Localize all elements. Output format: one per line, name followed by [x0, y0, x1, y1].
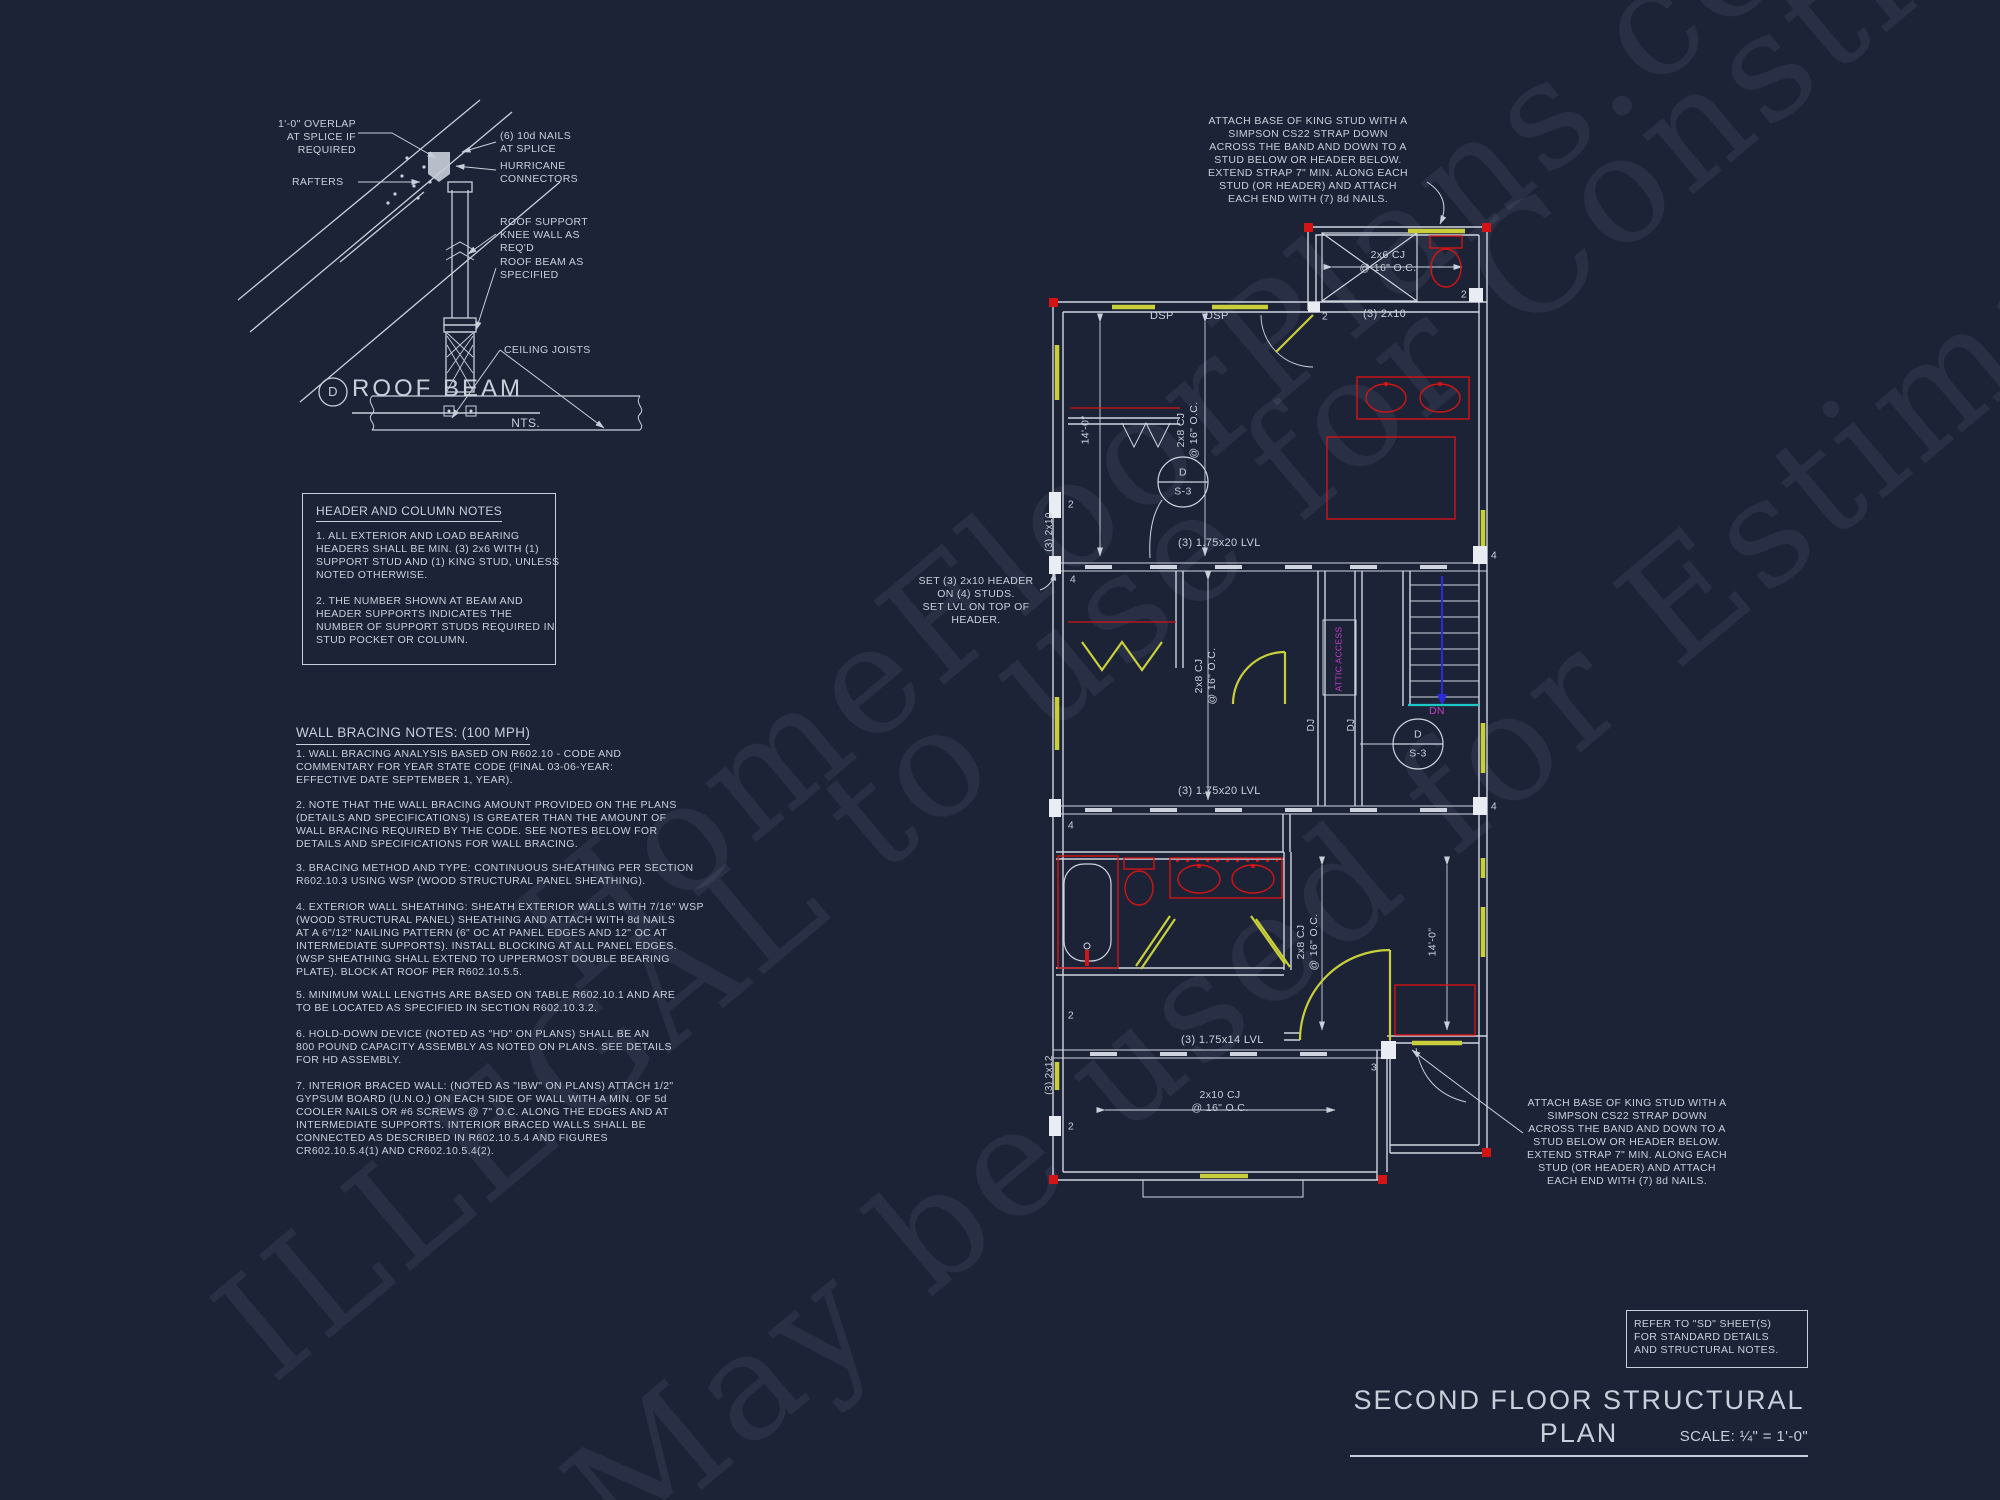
overlap-note: 1'-0" OVERLAP AT SPLICE IF REQUIRED: [228, 118, 356, 157]
ceiling-joists-label: CEILING JOISTS: [504, 344, 591, 357]
header-note-2: 2. THE NUMBER SHOWN AT BEAM AND HEADER S…: [316, 595, 555, 647]
lvl-14-label: (3) 1.75x14 LVL: [1181, 1034, 1264, 1048]
cj-2x10-label: 2x10 CJ @ 16" O.C.: [1172, 1089, 1268, 1115]
detail-bubble-letter: D: [328, 384, 338, 400]
detail-title: ROOF BEAM: [352, 374, 523, 404]
stud-marker: 2: [1461, 288, 1467, 301]
roof-beam-label: ROOF BEAM AS SPECIFIED: [500, 256, 584, 282]
dj-label-2: DJ: [1346, 719, 1358, 732]
stud-marker: 4: [1070, 573, 1076, 586]
header-note-1: 1. ALL EXTERIOR AND LOAD BEARING HEADERS…: [316, 530, 559, 582]
lvl-20-label-1: (3) 1.75x20 LVL: [1178, 537, 1261, 551]
stud-pocket-markers: [1049, 288, 1487, 1136]
stair-direction: [1408, 576, 1479, 706]
bracing-note-3: 3. BRACING METHOD AND TYPE: CONTINUOUS S…: [296, 862, 694, 888]
plumbing-fixtures: [1049, 223, 1491, 1184]
dsp-label-2: DSP: [1205, 310, 1229, 324]
cj-2x8-label-3: 2x8 CJ @ 16" O.C.: [1295, 914, 1321, 971]
windows-and-doors: [1057, 231, 1483, 1176]
stud-marker: 2: [1322, 310, 1328, 323]
bracing-note-6: 6. HOLD-DOWN DEVICE (NOTED AS "HD" ON PL…: [296, 1028, 672, 1067]
nails-label: (6) 10d NAILS AT SPLICE: [500, 130, 571, 156]
cj-2x8-label-2: 2x8 CJ @ 16" O.C.: [1193, 648, 1219, 705]
detail-ref-2-letter: D: [1414, 728, 1422, 741]
post-2x10-label: (3) 2x10: [1044, 512, 1056, 552]
stud-marker: 4: [1491, 549, 1497, 562]
dn-label: DN: [1429, 705, 1445, 718]
dim-14-top: 14'-0": [1079, 416, 1092, 445]
sheet-scale: SCALE: ¼" = 1'-0": [1500, 1428, 1808, 1447]
attic-access-label: ATTIC ACCESS: [1334, 627, 1345, 692]
dim-14-bottom: 14'-0": [1426, 928, 1439, 957]
stud-marker: 2: [1068, 498, 1074, 511]
post-2x12-label: (3) 2x12: [1044, 1055, 1056, 1095]
stud-marker: 3: [1371, 1061, 1377, 1074]
stud-marker: 4: [1491, 800, 1497, 813]
bracing-notes-title: WALL BRACING NOTES: (100 MPH): [296, 725, 530, 745]
lvl-20-label-2: (3) 1.75x20 LVL: [1178, 785, 1261, 799]
detail-ref-1-letter: D: [1179, 466, 1187, 479]
hurricane-label: HURRICANE CONNECTORS: [500, 160, 578, 186]
bracing-note-7: 7. INTERIOR BRACED WALL: (NOTED AS "IBW"…: [296, 1080, 674, 1158]
detail-scale: NTS.: [470, 416, 540, 431]
dsp-label-1: DSP: [1150, 310, 1174, 324]
detail-ref-2-sheet: S-3: [1409, 747, 1426, 760]
stud-marker: 2: [1068, 1120, 1074, 1133]
rafters-label: RAFTERS: [292, 176, 343, 189]
bracing-note-1: 1. WALL BRACING ANALYSIS BASED ON R602.1…: [296, 748, 621, 787]
dj-label-1: DJ: [1306, 719, 1318, 732]
bracing-note-4: 4. EXTERIOR WALL SHEATHING: SHEATH EXTER…: [296, 901, 704, 979]
strap-callout-top: ATTACH BASE OF KING STUD WITH A SIMPSON …: [1188, 115, 1428, 206]
strap-callout-bottom: ATTACH BASE OF KING STUD WITH A SIMPSON …: [1502, 1097, 1752, 1188]
cj-2x8-label-1: 2x8 CJ @ 16" O.C.: [1175, 402, 1201, 459]
sd-note-text: REFER TO "SD" SHEET(S) FOR STANDARD DETA…: [1634, 1318, 1779, 1357]
header-notes-title: HEADER AND COLUMN NOTES: [316, 504, 502, 522]
header-3-2x10-label: (3) 2x10: [1363, 308, 1406, 322]
drawing-sheet: ILLEGAL to use for Constructions HomeFlo…: [0, 0, 2000, 1500]
knee-wall-label: ROOF SUPPORT KNEE WALL AS REQ'D: [500, 216, 588, 255]
bracing-note-5: 5. MINIMUM WALL LENGTHS ARE BASED ON TAB…: [296, 989, 675, 1015]
set-header-note: SET (3) 2x10 HEADER ON (4) STUDS. SET LV…: [910, 575, 1042, 627]
stud-marker: 4: [1068, 819, 1074, 832]
detail-ref-1-sheet: S-3: [1174, 485, 1191, 498]
stud-marker: 2: [1068, 1009, 1074, 1022]
cj-2x6-label: 2x6 CJ @ 16" O.C.: [1345, 249, 1431, 275]
bracing-note-2: 2. NOTE THAT THE WALL BRACING AMOUNT PRO…: [296, 799, 677, 851]
